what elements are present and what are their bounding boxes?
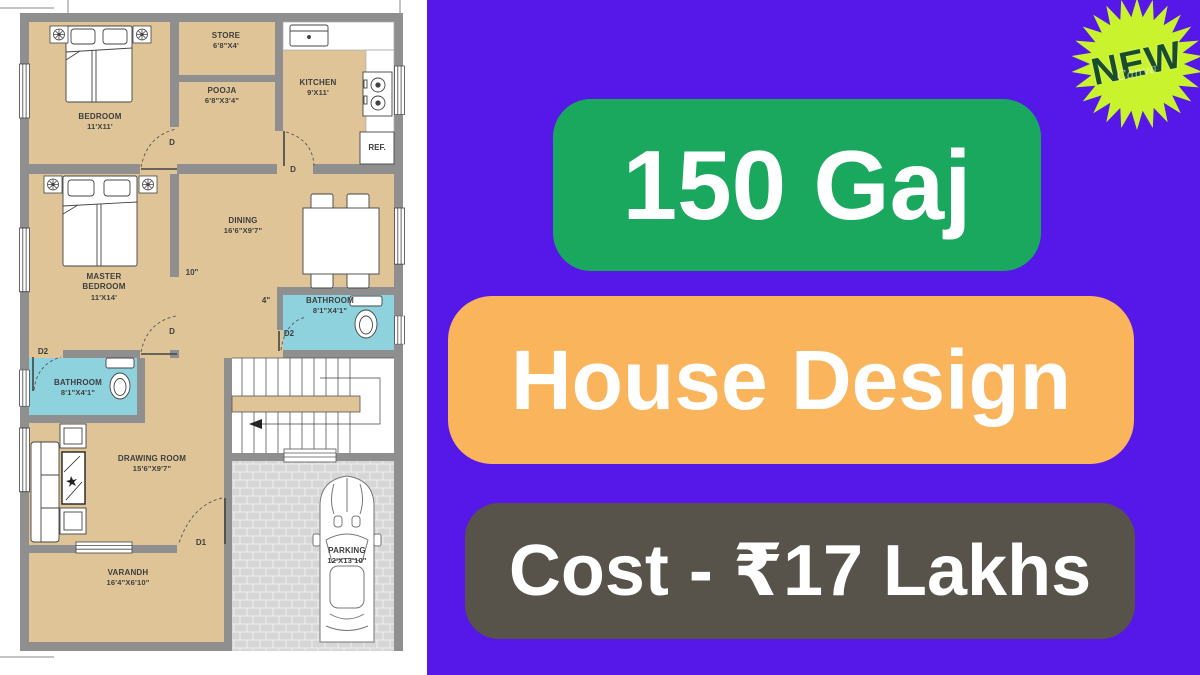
- room-label-bathroom-right: BATHROOM 8'1"X4'1": [306, 296, 354, 316]
- wall-dim-10: 10": [186, 269, 199, 277]
- door-label-d: D: [169, 328, 175, 336]
- floor-plan: BEDROOM 11'X11' STORE 6'8"X4' POOJA 6'8"…: [0, 0, 427, 675]
- room-label-pooja: POOJA 6'8"X3'4": [205, 86, 239, 106]
- room-label-dining: DINING 16'6"X9'7": [224, 216, 263, 236]
- tv-unit-icon: [62, 452, 85, 504]
- banner-cost-label: Cost - ₹17 Lakhs: [509, 535, 1091, 607]
- banner-150-gaj-label: 150 Gaj: [623, 136, 972, 234]
- room-label-kitchen: KITCHEN 9'X11': [300, 78, 337, 98]
- wall-dim-4: 4": [262, 297, 270, 305]
- door-label-d: D: [290, 166, 296, 174]
- banner-house-design-label: House Design: [511, 338, 1071, 422]
- room-label-store: STORE 6'8"X4': [212, 31, 240, 51]
- banner-cost: Cost - ₹17 Lakhs: [465, 503, 1135, 639]
- room-label-drawing-room: DRAWING ROOM 15'6"X9'7": [117, 454, 187, 474]
- room-label-master-bedroom: MASTER BEDROOM 11'X14': [72, 272, 136, 303]
- banner-150-gaj: 150 Gaj: [553, 99, 1041, 271]
- fridge-label: REF.: [368, 144, 385, 152]
- dining-set-icon: [303, 194, 379, 288]
- room-label-bedroom: BEDROOM 11'X11': [78, 112, 121, 132]
- thumbnail: BEDROOM 11'X11' STORE 6'8"X4' POOJA 6'8"…: [0, 0, 1200, 675]
- sofa-icon: [31, 442, 59, 542]
- bed-icon: [66, 26, 132, 102]
- stove-icon: [363, 72, 392, 116]
- armchair-icon: [60, 508, 86, 534]
- bed-icon: [63, 176, 137, 266]
- new-badge: NEW Canva: [1052, 0, 1200, 149]
- door-label-d2: D2: [38, 348, 48, 356]
- door-label-d1: D1: [196, 539, 206, 547]
- door-label-d: D: [169, 139, 175, 147]
- armchair-icon: [60, 424, 86, 448]
- room-label-parking: PARKING 12'X13'10": [327, 546, 366, 566]
- room-label-varandh: VARANDH 16'4"X6'10": [107, 568, 150, 588]
- door-label-d2: D2: [284, 330, 294, 338]
- sink-icon: [290, 25, 328, 46]
- banner-house-design: House Design: [448, 296, 1134, 464]
- right-panel: 150 Gaj House Design Cost - ₹17 Lakhs NE…: [427, 0, 1200, 675]
- room-label-bathroom-left: BATHROOM 8'1"X4'1": [54, 378, 102, 398]
